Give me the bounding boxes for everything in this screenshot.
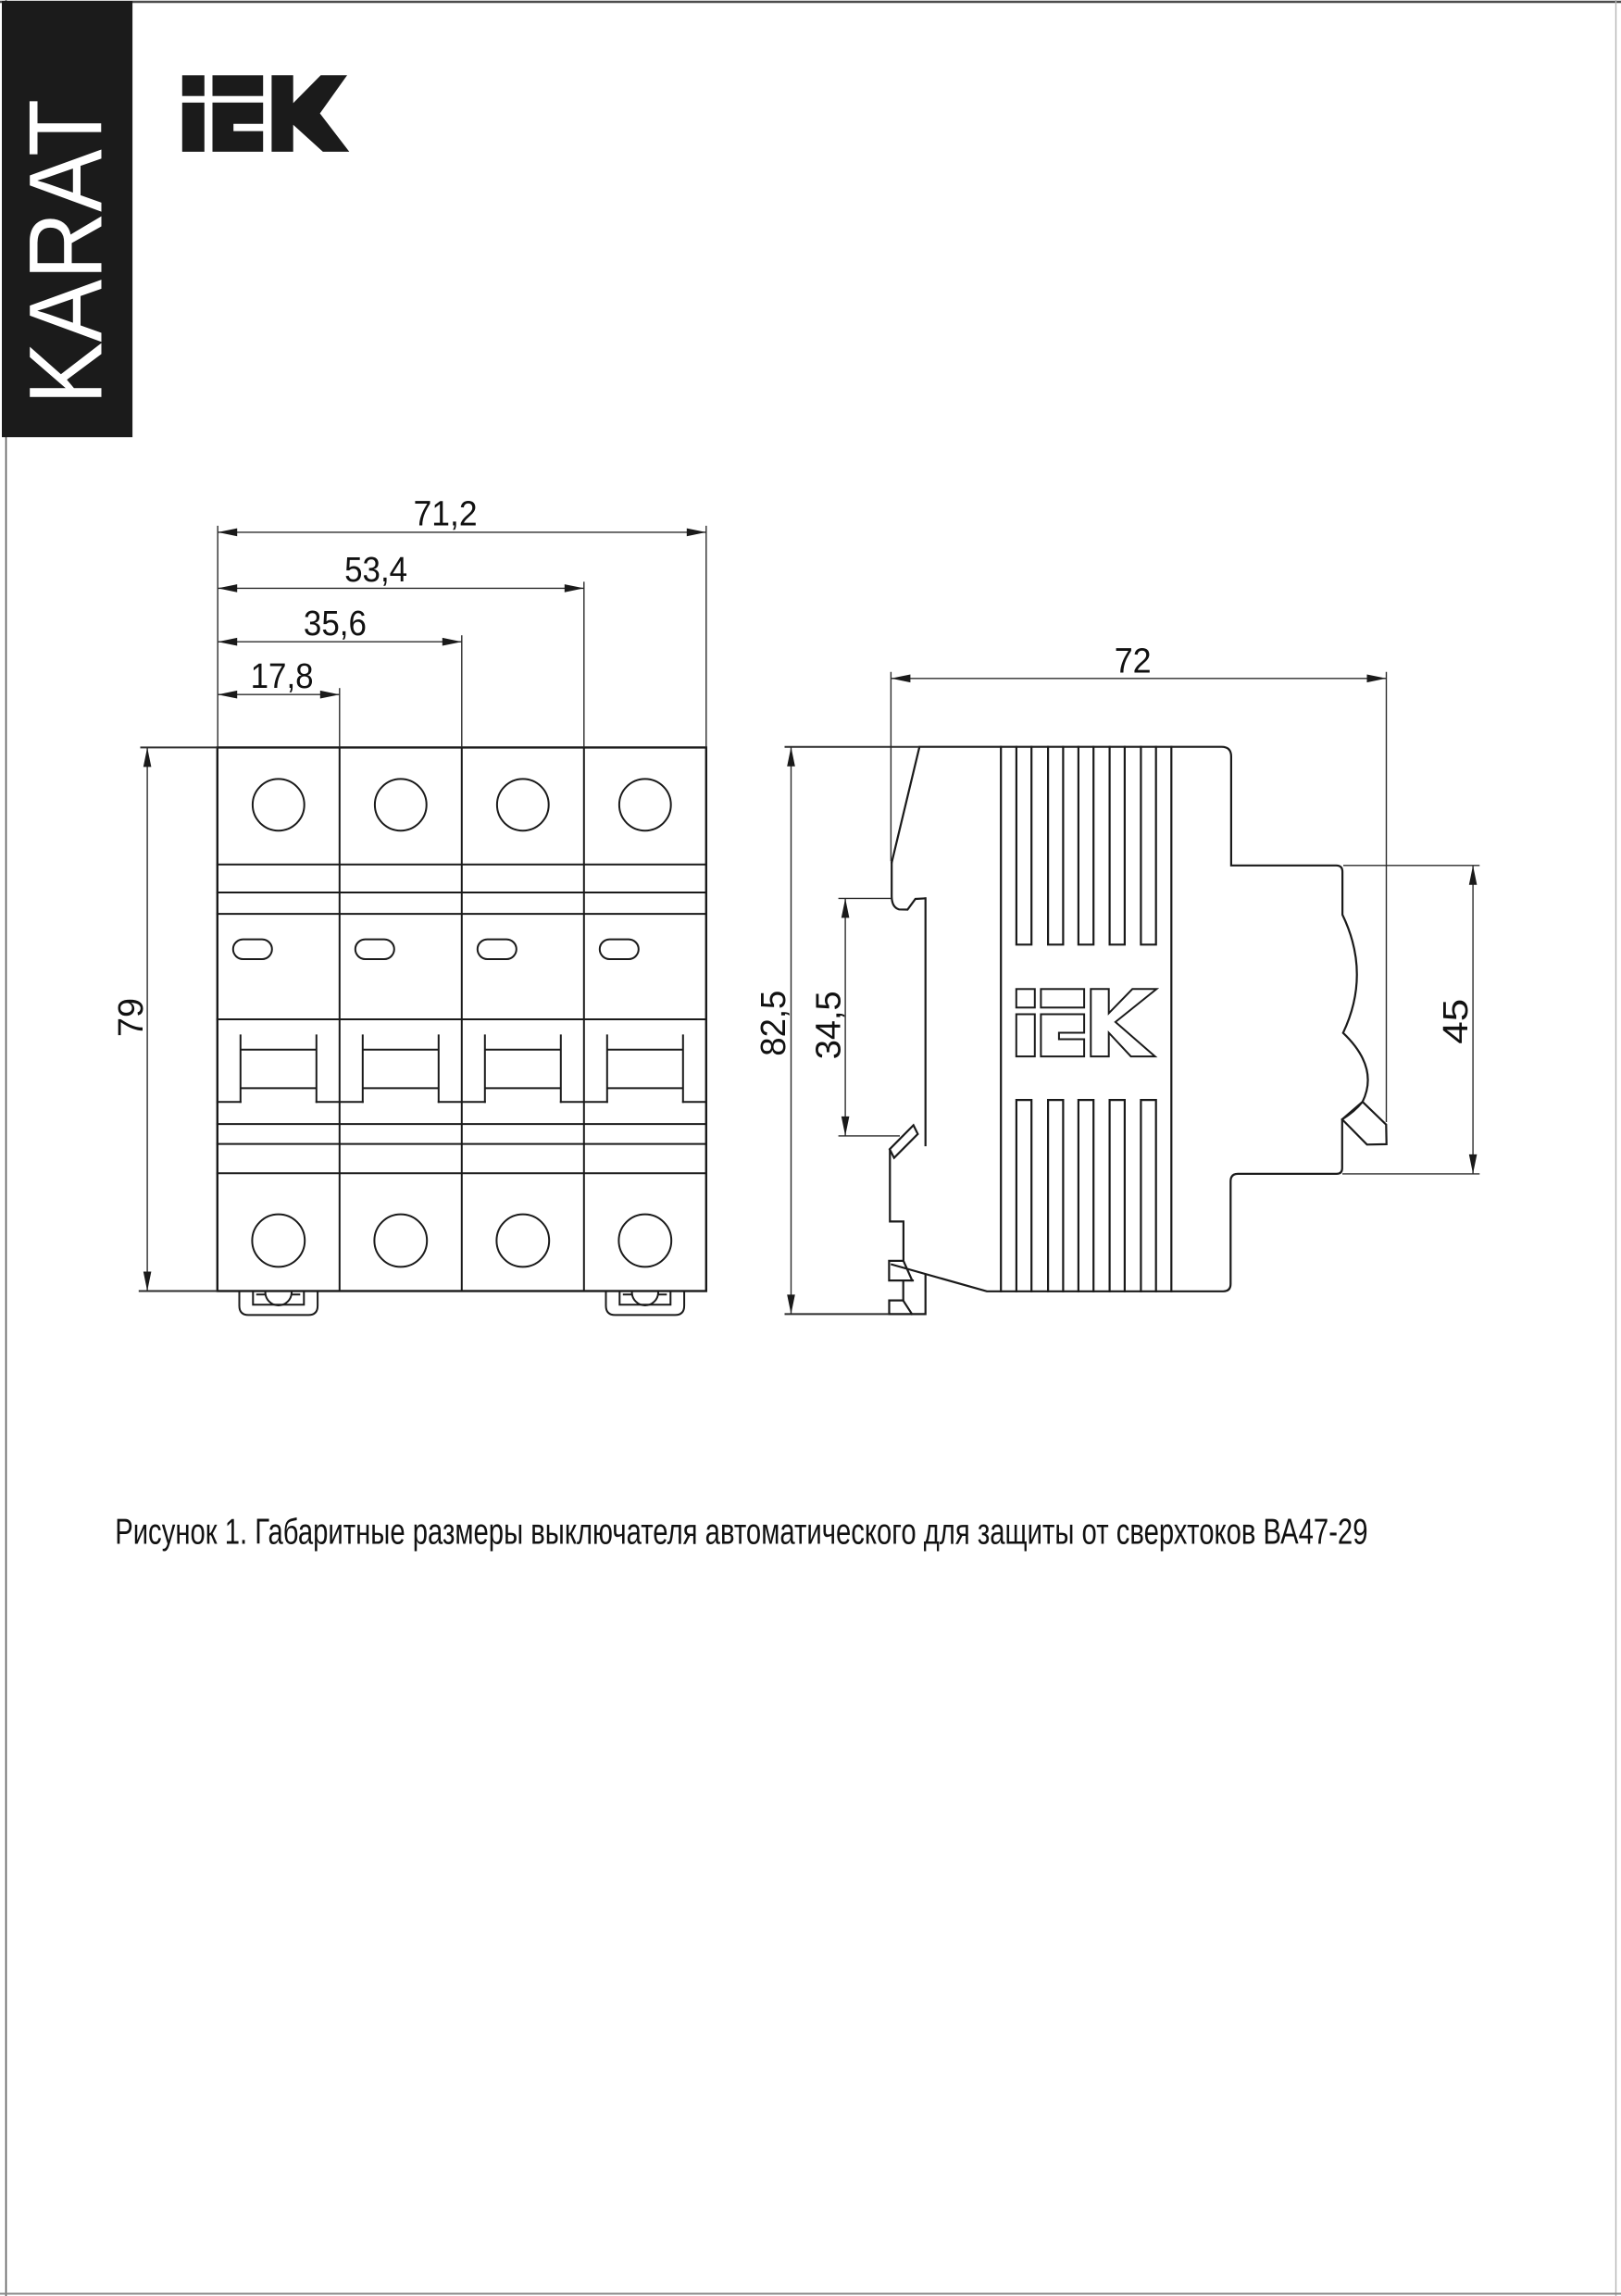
svg-text:34,5: 34,5	[810, 991, 849, 1059]
svg-text:KARAT: KARAT	[7, 99, 123, 405]
svg-text:17,8: 17,8	[251, 657, 314, 696]
svg-text:Рисунок 1. Габаритные размеры: Рисунок 1. Габаритные размеры выключател…	[115, 1513, 1367, 1553]
svg-text:35,6: 35,6	[304, 605, 367, 643]
svg-text:71,2: 71,2	[414, 495, 478, 534]
svg-text:79: 79	[112, 998, 151, 1037]
svg-text:72: 72	[1115, 643, 1152, 681]
svg-text:45: 45	[1437, 999, 1476, 1044]
svg-text:82,5: 82,5	[754, 991, 793, 1056]
svg-text:53,4: 53,4	[344, 551, 407, 590]
